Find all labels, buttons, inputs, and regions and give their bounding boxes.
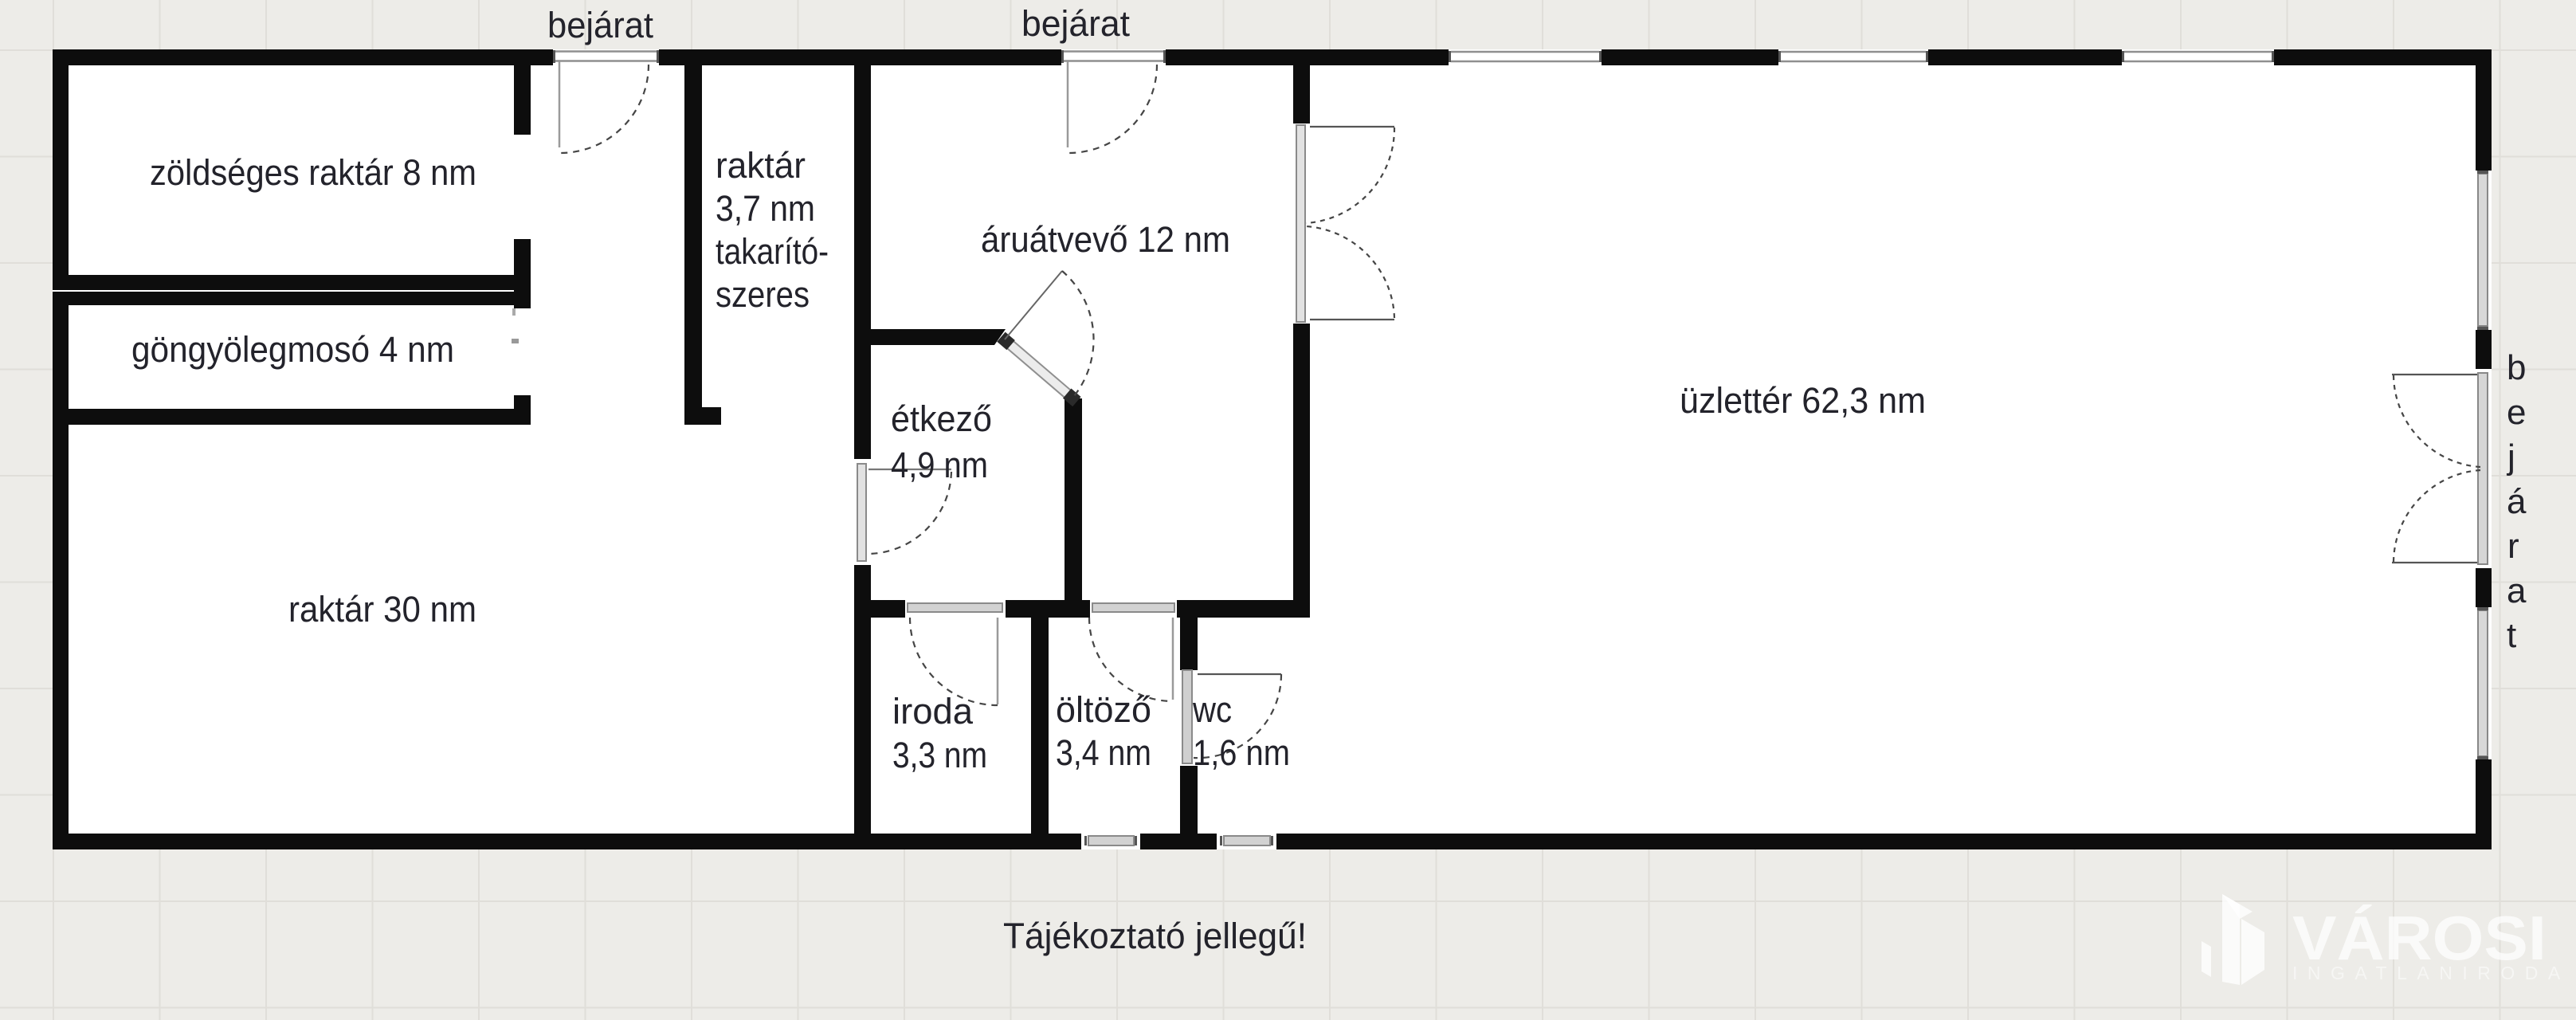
svg-text:t: t [2507,616,2516,655]
svg-text:öltöző: öltöző [1056,689,1151,730]
svg-text:bejárat: bejárat [1021,3,1130,44]
svg-text:üzlettér 62,3 nm: üzlettér 62,3 nm [1680,380,1926,421]
svg-text:3,3 nm: 3,3 nm [892,735,987,775]
svg-text:étkező: étkező [891,398,992,439]
svg-text:INGATLANIRODA: INGATLANIRODA [2292,963,2570,983]
svg-text:bejárat: bejárat [547,5,653,45]
svg-text:á: á [2507,482,2527,521]
svg-text:zöldséges raktár 8 nm: zöldséges raktár 8 nm [150,152,476,193]
svg-text:Tájékoztató jellegű!: Tájékoztató jellegű! [1003,916,1307,956]
svg-text:3,4 nm: 3,4 nm [1056,732,1151,773]
svg-text:wc: wc [1192,689,1232,730]
svg-text:1,6 nm: 1,6 nm [1193,732,1290,773]
svg-text:áruátvevő 12 nm: áruátvevő 12 nm [981,219,1230,260]
svg-text:a: a [2507,571,2527,610]
svg-text:iroda: iroda [892,691,974,732]
svg-text:raktár 30 nm: raktár 30 nm [288,589,476,630]
svg-text:szeres: szeres [716,274,810,315]
svg-text:takarító-: takarító- [716,231,829,272]
svg-text:b: b [2507,348,2526,387]
svg-text:göngyölegmosó 4 nm: göngyölegmosó 4 nm [131,329,454,370]
svg-text:raktár: raktár [716,145,806,186]
svg-text:4,9 nm: 4,9 nm [891,445,988,485]
svg-text:r: r [2507,527,2519,566]
svg-text:3,7 nm: 3,7 nm [716,188,815,229]
svg-text:j: j [2506,437,2515,477]
svg-text:e: e [2507,393,2526,432]
